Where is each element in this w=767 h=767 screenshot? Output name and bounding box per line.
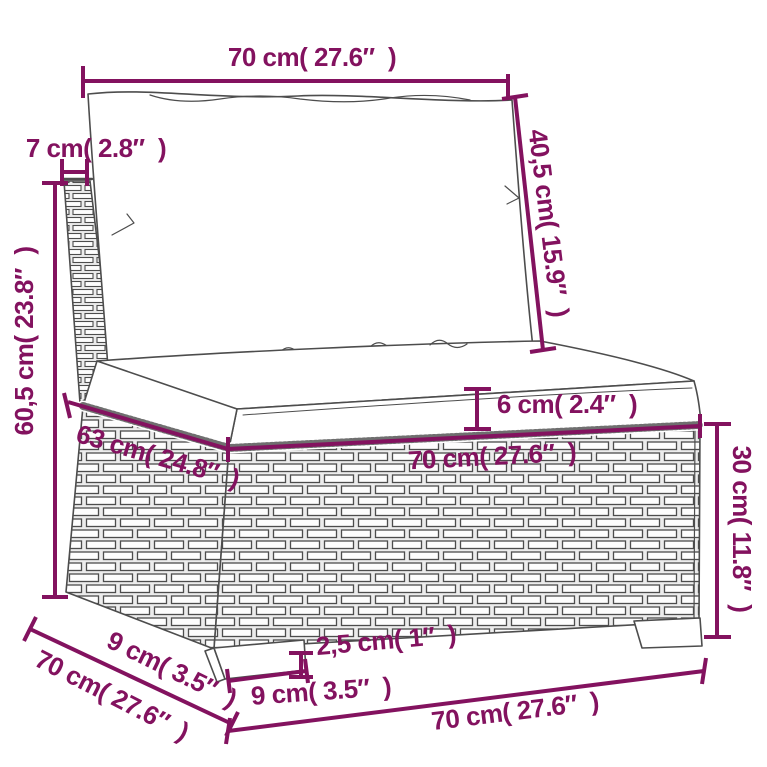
dim-label-back-thickness: 7 cm( 2.8″ ) xyxy=(26,135,166,161)
right-leg xyxy=(634,618,702,648)
dim-label-back-width: 70 cm( 27.6″ ) xyxy=(228,44,396,70)
dim-label-base-height: 30 cm( 11.8″ ) xyxy=(729,446,755,613)
dim-label-total-height: 60,5 cm( 23.8″ ) xyxy=(11,247,37,436)
dim-label-seat-cushion-thickness: 6 cm( 2.4″ ) xyxy=(497,391,637,417)
product-dimension-diagram: 70 cm( 27.6″ ) 7 cm( 2.8″ ) 40,5 cm( 15.… xyxy=(0,0,767,767)
